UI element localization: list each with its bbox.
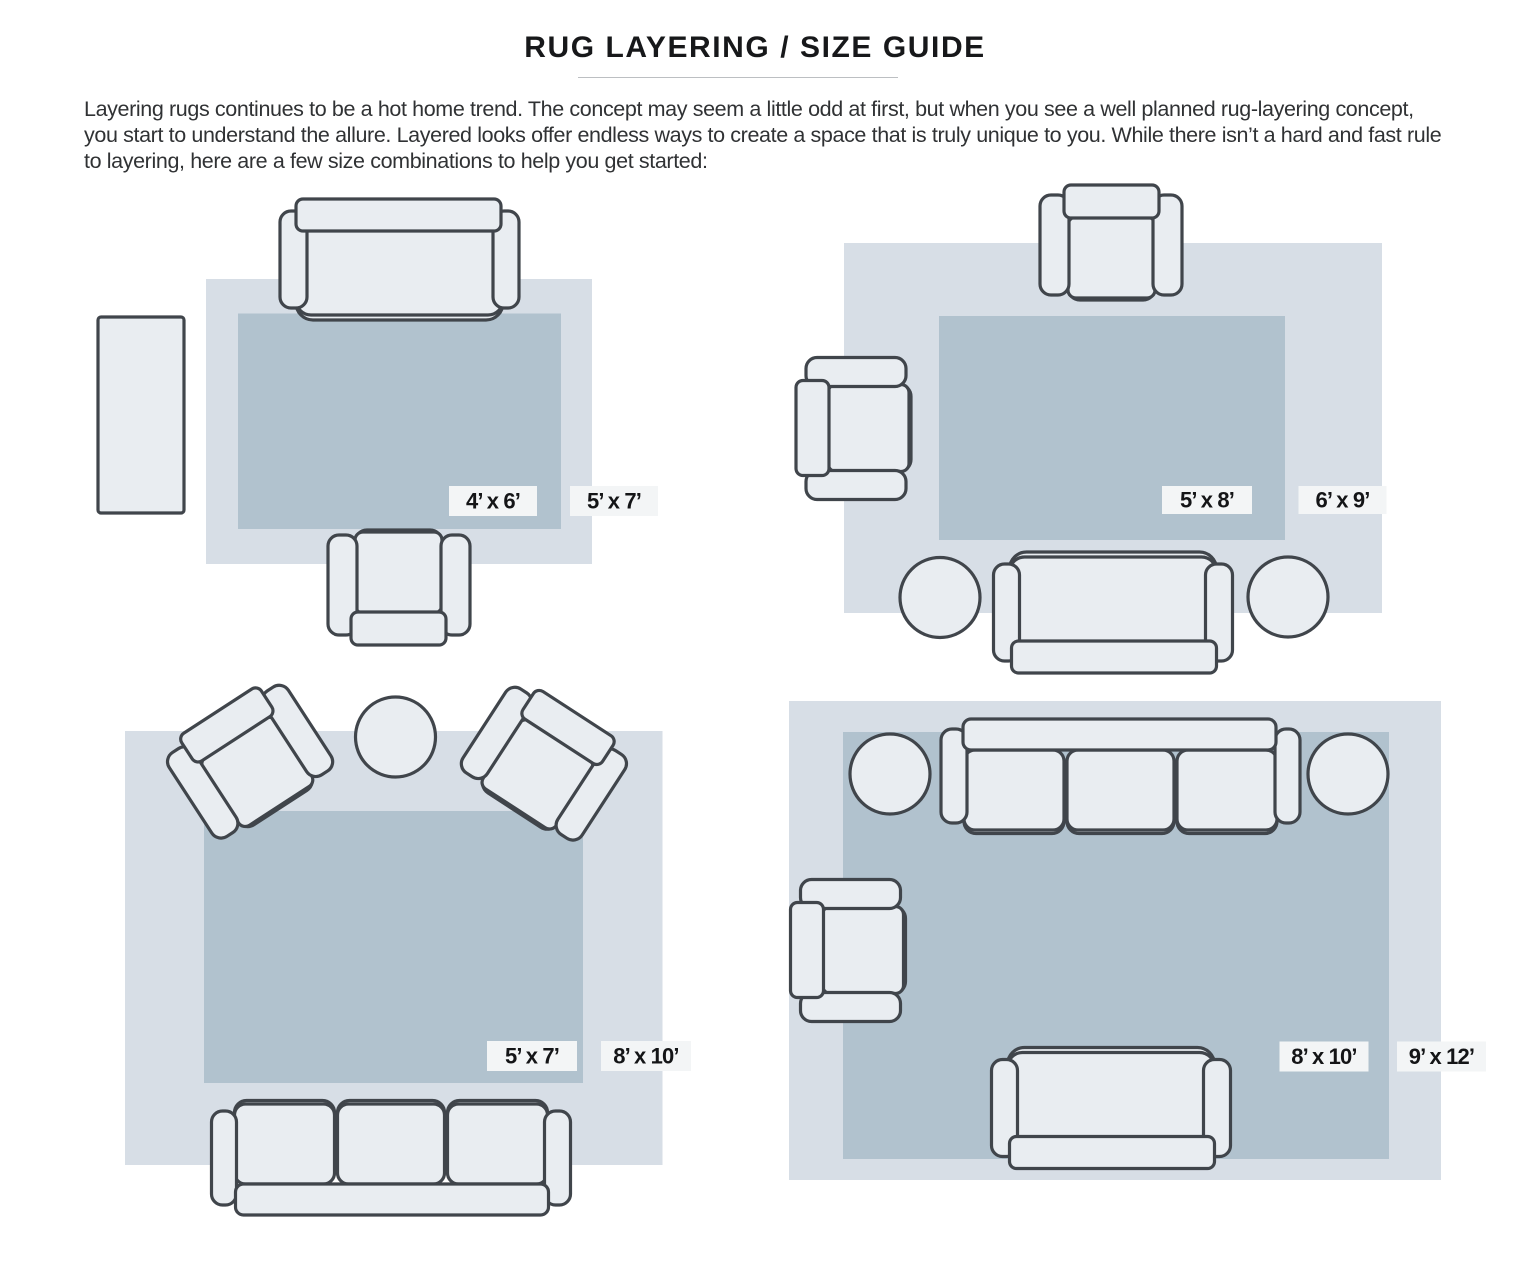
svg-text:8’ x 10’: 8’ x 10’	[1291, 1044, 1356, 1069]
svg-text:9’ x 12’: 9’ x 12’	[1409, 1044, 1474, 1069]
svg-text:5’ x 7’: 5’ x 7’	[505, 1044, 559, 1069]
svg-text:5’ x 7’: 5’ x 7’	[587, 489, 641, 514]
svg-text:5’ x 8’: 5’ x 8’	[1180, 488, 1234, 513]
svg-text:6’ x 9’: 6’ x 9’	[1316, 488, 1370, 513]
svg-text:8’ x 10’: 8’ x 10’	[613, 1044, 678, 1069]
svg-text:4’ x 6’: 4’ x 6’	[466, 489, 520, 514]
